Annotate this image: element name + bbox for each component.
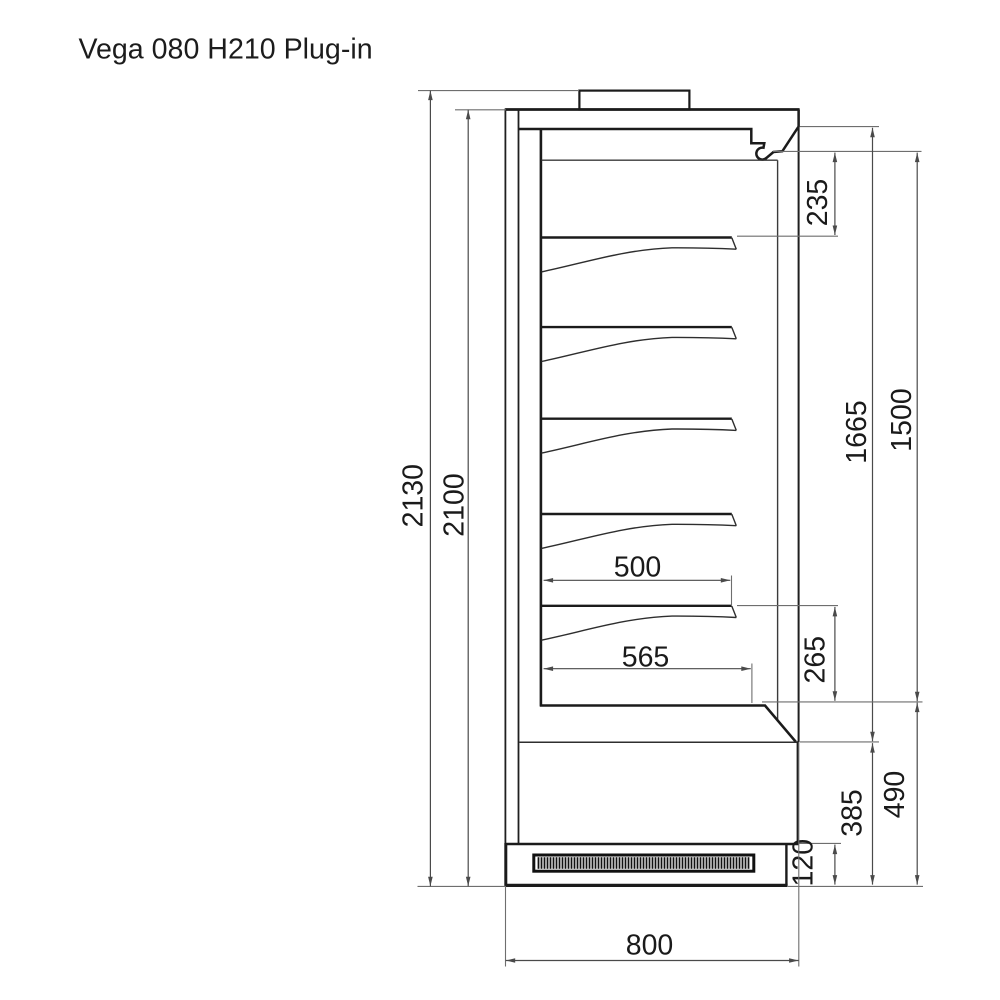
svg-text:500: 500: [614, 551, 662, 583]
svg-text:800: 800: [626, 929, 674, 961]
svg-text:385: 385: [837, 789, 869, 837]
svg-text:1665: 1665: [841, 400, 873, 463]
svg-text:565: 565: [622, 642, 670, 674]
svg-text:Vega 080 H210 Plug-in: Vega 080 H210 Plug-in: [79, 34, 373, 66]
svg-text:2130: 2130: [398, 464, 430, 527]
svg-text:2100: 2100: [439, 473, 471, 536]
svg-text:120: 120: [788, 839, 820, 887]
svg-text:490: 490: [879, 771, 911, 819]
svg-text:1500: 1500: [886, 388, 918, 451]
svg-text:235: 235: [802, 179, 834, 227]
svg-text:265: 265: [800, 636, 832, 684]
